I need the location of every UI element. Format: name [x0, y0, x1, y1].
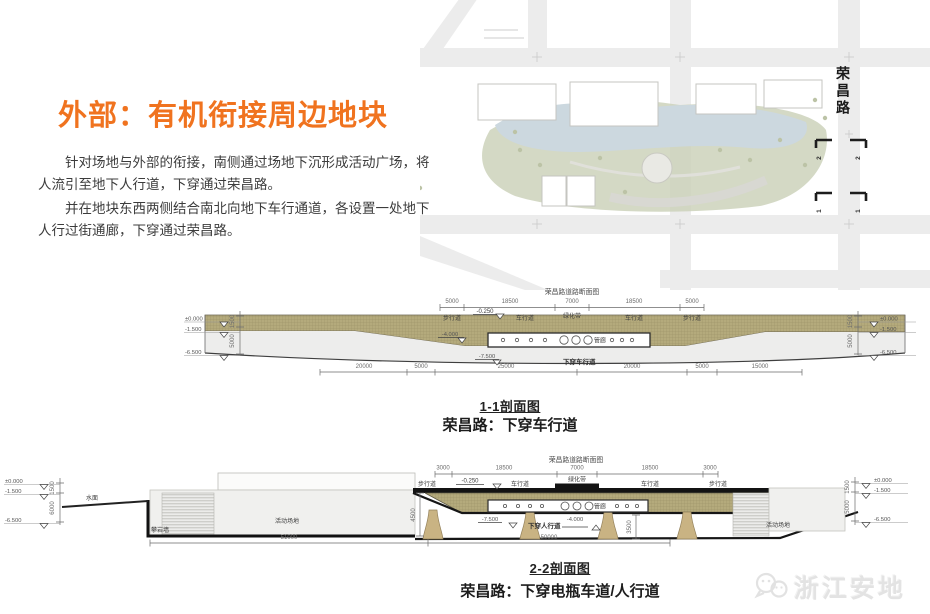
elev-m65-left: -6.500 [185, 350, 201, 356]
elev-m4: -4.000 [442, 332, 458, 338]
section-2-2-drawing: 水面 攀岩墙 活动场地 管廊 [0, 455, 910, 555]
section1-utility-gallery: 管廊 [488, 333, 650, 347]
dim: 20000 [624, 364, 641, 370]
dim: 5000 [695, 364, 709, 370]
elev-m65-right: -6.500 [880, 350, 896, 356]
company-logo: 浙江安地 [752, 565, 927, 609]
section2-caption: 荣昌路：下穿电瓶车道/人行道 [425, 580, 695, 601]
road-section-title: 荣昌路道路断面图 [549, 455, 604, 464]
elev-m75: -7.500 [479, 354, 495, 360]
elev-m15-right: -1.500 [874, 488, 890, 494]
dim: 5000 [414, 364, 428, 370]
vdim-1500: 1500 [50, 481, 56, 495]
elev-m65-right: -6.500 [874, 517, 890, 523]
water-label: 水面 [86, 494, 98, 502]
elev-m025: -0.250 [461, 479, 479, 485]
lane-green: 绿化带 [568, 476, 586, 484]
intro-paragraph-2: 并在地块东西两侧结合南北向地下车行通道，各设置一处地下人行过街通廊，下穿通过荣昌… [38, 198, 430, 242]
vdim-1500: 1500 [230, 314, 236, 328]
section-1-1-drawing: 管廊 荣昌路道路断面图 5000 18500 7000 18500 5000 步… [180, 283, 920, 401]
elev-zero-right: ±0.000 [880, 317, 898, 323]
lane-sidewalk-right: 步行道 [683, 314, 701, 322]
dim: 51000 [281, 535, 298, 541]
section1-caption-number: 1-1剖面图 [430, 396, 590, 415]
dim: 20000 [356, 364, 373, 370]
plaza-label-left: 活动场地 [275, 517, 299, 525]
section1-caption: 荣昌路：下穿车行道 [380, 414, 640, 435]
underpass-label: 下穿车行道 [563, 357, 596, 366]
lane-sidewalk-right: 步行道 [709, 480, 727, 488]
elev-m15-right: -1.500 [880, 327, 896, 333]
scale-bar [484, 30, 524, 38]
site-plan-map: 2 2 1 1 [420, 0, 930, 290]
dim: 15000 [752, 364, 769, 370]
dim: 18500 [626, 299, 643, 305]
dim: 18500 [502, 299, 519, 305]
dim: 5000 [445, 299, 459, 305]
section2-left-elevations: ±0.000 -1.500 -6.500 1500 6000 [4, 478, 64, 529]
section-2-label-left: 2 [816, 156, 823, 160]
plaza-label-right: 活动场地 [766, 521, 790, 529]
section2-caption-number: 2-2剖面图 [480, 558, 640, 577]
section1-bottom-dimensions: 20000 5000 25000 20000 5000 15000 [320, 364, 802, 376]
vdim-1500: 1500 [845, 480, 851, 494]
dim: 7000 [565, 299, 579, 305]
section2-utility-gallery: 管廊 [488, 500, 648, 512]
elev-m75: -7.500 [482, 517, 498, 523]
page-title: 外部：有机衔接周边地块 [58, 92, 458, 134]
vdim-4500: 4500 [411, 508, 417, 522]
park-site [420, 80, 827, 212]
section-1-label-right: 1 [855, 209, 862, 213]
lane-carriage-left: 车行道 [511, 480, 529, 488]
dim: 7000 [570, 466, 584, 472]
dim: 50000 [541, 535, 558, 541]
vdim-5000: 5000 [845, 500, 851, 514]
road-section-title: 荣昌路道路断面图 [545, 287, 600, 296]
section2-left-plaza: 水面 攀岩墙 活动场地 [62, 473, 415, 536]
section2-top-dimensions: 荣昌路道路断面图 3000 18500 7000 18500 3000 [435, 455, 718, 478]
lane-sidewalk-left: 步行道 [418, 480, 436, 488]
elev-m15-left: -1.500 [5, 489, 21, 495]
elev-m025: -0.250 [476, 309, 494, 315]
climb-wall-label: 攀岩墙 [151, 526, 169, 534]
dim: 3000 [436, 466, 450, 472]
vdim-6000: 6000 [50, 501, 56, 515]
dim: 18500 [642, 466, 659, 472]
elev-zero-left: ±0.000 [5, 479, 23, 485]
lane-sidewalk-left: 步行道 [443, 314, 461, 322]
chat-bubbles-icon [752, 569, 794, 605]
slide: 外部：有机衔接周边地块 针对场地与外部的衔接，南侧通过场地下沉形成活动广场，将人… [0, 0, 930, 614]
section-2-label-right: 2 [855, 156, 862, 160]
dim: 3000 [703, 466, 717, 472]
lane-carriage-left: 车行道 [516, 314, 534, 322]
section-1-label-left: 1 [816, 209, 823, 213]
vdim-3500: 3500 [627, 520, 633, 534]
elev-zero-right: ±0.000 [874, 478, 892, 484]
section2-right-plaza: 活动场地 [733, 488, 845, 536]
water-surface-line [62, 501, 148, 507]
elev-m15-left: -1.500 [185, 327, 201, 333]
lane-carriage-right: 车行道 [641, 480, 659, 488]
lane-green: 绿化带 [563, 312, 581, 320]
dim: 5000 [685, 299, 699, 305]
lane-carriage-right: 车行道 [625, 314, 643, 322]
gallery-label: 管廊 [594, 337, 606, 345]
section2-internal-elevations: -7.500 下穿人行道 -4.000 [478, 517, 600, 530]
section2-right-elevations: ±0.000 -1.500 -6.500 1500 5000 [845, 477, 908, 528]
vdim-5000: 5000 [230, 334, 236, 348]
circular-plaza [642, 153, 672, 183]
vdim-1500: 1500 [848, 314, 854, 328]
company-logo-text: 浙江安地 [794, 569, 906, 605]
road-label-rongchang: 荣昌路 [833, 66, 853, 117]
elev-m65-left: -6.500 [5, 518, 21, 524]
section1-top-dimensions: 荣昌路道路断面图 5000 18500 7000 18500 5000 [440, 287, 704, 311]
site-plan-graphic: 2 2 1 1 [420, 0, 930, 290]
dim: 18500 [496, 466, 513, 472]
underpass-label: 下穿人行道 [528, 521, 561, 530]
intro-paragraph-1: 针对场地与外部的衔接，南侧通过场地下沉形成活动广场，将人流引至地下人行道，下穿通… [38, 152, 430, 196]
dim: 25000 [498, 364, 515, 370]
elev-zero-left: ±0.000 [185, 317, 203, 323]
vdim-5000: 5000 [848, 334, 854, 348]
elev-m4: -4.000 [567, 517, 583, 523]
gallery-label: 管廊 [594, 503, 606, 511]
